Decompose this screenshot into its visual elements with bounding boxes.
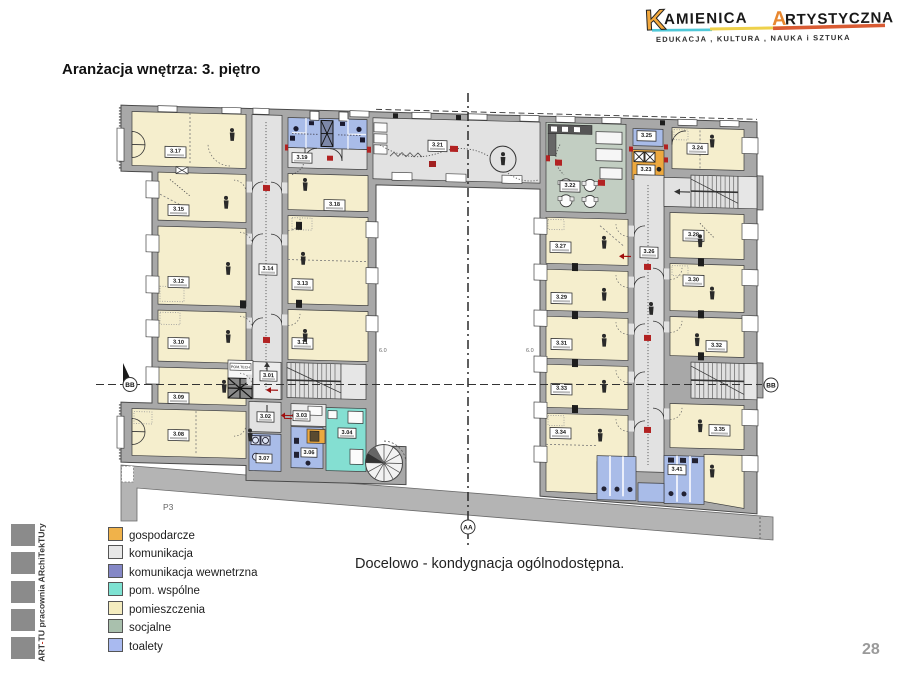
svg-text:3.28: 3.28 xyxy=(688,232,699,238)
svg-text:3.34: 3.34 xyxy=(555,430,567,436)
svg-text:3.32: 3.32 xyxy=(711,343,722,349)
svg-text:3.25: 3.25 xyxy=(641,133,652,139)
svg-text:3.22: 3.22 xyxy=(565,183,576,189)
svg-text:BB: BB xyxy=(125,382,135,389)
svg-text:P3: P3 xyxy=(163,502,174,512)
svg-text:AA: AA xyxy=(463,525,473,532)
svg-text:3.29: 3.29 xyxy=(556,295,567,301)
svg-text:3.21: 3.21 xyxy=(432,142,443,148)
svg-text:3.13: 3.13 xyxy=(297,281,308,287)
svg-text:3.09: 3.09 xyxy=(173,395,184,401)
svg-text:3.12: 3.12 xyxy=(173,279,184,285)
svg-text:3.31: 3.31 xyxy=(556,341,567,347)
svg-text:3.06: 3.06 xyxy=(304,450,315,456)
svg-text:3.14: 3.14 xyxy=(263,266,275,272)
svg-text:3.10: 3.10 xyxy=(173,340,184,346)
svg-text:3.27: 3.27 xyxy=(555,244,566,250)
svg-text:3.33: 3.33 xyxy=(556,386,567,392)
svg-text:3.18: 3.18 xyxy=(329,202,340,208)
svg-text:3.23: 3.23 xyxy=(641,167,652,173)
svg-text:3.35: 3.35 xyxy=(714,427,725,433)
svg-text:6.0: 6.0 xyxy=(526,348,534,354)
svg-text:3.08: 3.08 xyxy=(173,432,184,438)
svg-text:3.07: 3.07 xyxy=(259,456,270,462)
svg-text:3.24: 3.24 xyxy=(692,145,704,151)
svg-text:BB: BB xyxy=(766,383,776,390)
svg-text:3.41: 3.41 xyxy=(672,467,683,473)
svg-text:POM.TECH: POM.TECH xyxy=(231,365,250,370)
svg-text:6.0: 6.0 xyxy=(379,348,387,354)
svg-text:3.17: 3.17 xyxy=(170,148,181,154)
svg-text:3.30: 3.30 xyxy=(688,277,699,283)
svg-text:3.15: 3.15 xyxy=(173,207,184,213)
svg-text:3.26: 3.26 xyxy=(644,249,655,255)
